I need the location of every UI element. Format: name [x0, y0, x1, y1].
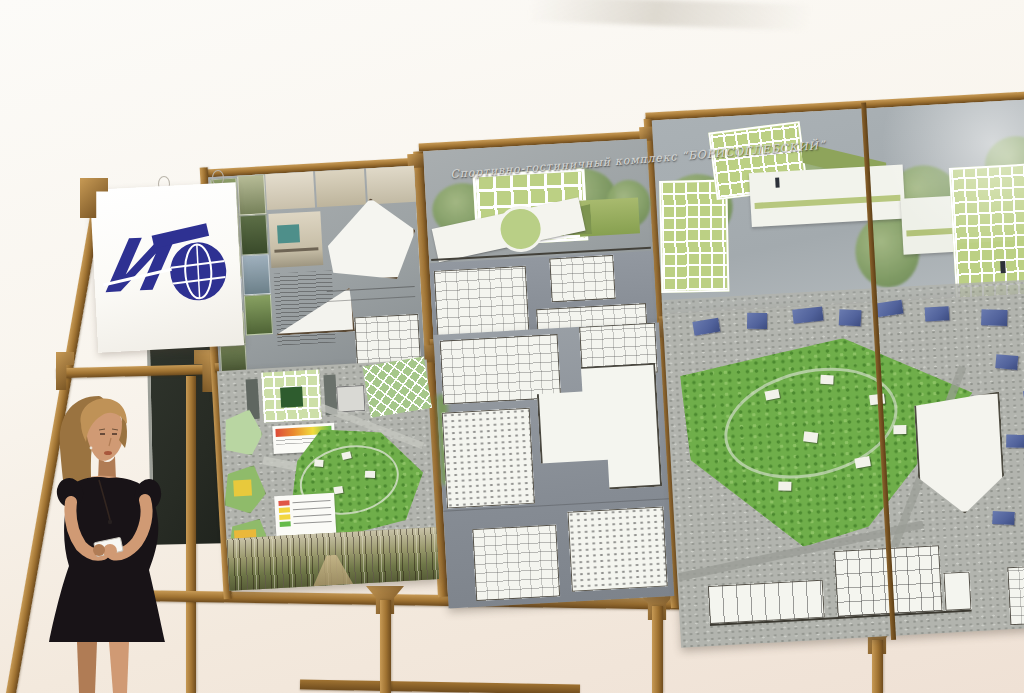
park-building [854, 456, 871, 468]
section-block-end [943, 571, 971, 610]
mini-map-patch [233, 479, 252, 496]
nature-photo [244, 294, 273, 335]
logo-banner: И [90, 182, 244, 352]
forest-panorama [226, 527, 439, 591]
city-building [992, 511, 1015, 525]
park-building [803, 431, 818, 443]
park-building [333, 486, 343, 494]
city-building [1006, 435, 1024, 448]
park-building [820, 375, 833, 385]
interior-photo [315, 169, 365, 208]
presenter-hand [93, 544, 105, 556]
park-building [778, 481, 791, 490]
presenter-mouth [104, 451, 112, 455]
nature-photo [239, 214, 268, 255]
interior-photo [265, 171, 315, 210]
legend-rows [277, 498, 332, 527]
corner-floor-plan [1007, 564, 1024, 626]
interior-shelf [274, 247, 318, 252]
triangular-floor-plan [318, 196, 418, 283]
section-block-low [708, 580, 825, 624]
section-drawing [706, 542, 971, 627]
city-building [747, 313, 767, 329]
board-bottom-right [663, 292, 1024, 648]
render-figure [775, 177, 780, 187]
globe-icon [169, 241, 228, 302]
board-bottom-left [217, 359, 439, 590]
diagonal-grid-patch [362, 357, 432, 418]
interior-photo-strip [265, 166, 416, 210]
park-building [893, 425, 906, 434]
floor-plan-5 [472, 524, 560, 601]
city-building [995, 354, 1018, 370]
render-figure [1000, 261, 1006, 273]
city-building [692, 318, 720, 336]
presenter-hand [103, 544, 117, 558]
pentagon-floor-plan [914, 392, 1007, 517]
dimension-line [327, 286, 415, 292]
park-building [365, 471, 375, 478]
mini-map-2 [222, 465, 267, 515]
city-building [876, 300, 904, 318]
nature-photo [242, 254, 271, 295]
interior-render-photo [268, 211, 323, 268]
photo-glare [851, 98, 1024, 249]
nature-photo [237, 174, 266, 215]
interior-photo [366, 166, 416, 205]
presenter-earring [90, 447, 93, 450]
presenter-leg-right [109, 642, 129, 693]
board-wall: Спортивно-гостиничный комплекс “БОРИСОГЛ… [195, 72, 1024, 689]
board-bottom-center [433, 322, 674, 608]
forest-path [312, 554, 354, 586]
interior-painting [277, 224, 300, 243]
stand-post-left [186, 376, 196, 693]
floor-plan-6 [567, 506, 667, 591]
presenter-leg-left [77, 642, 97, 693]
board-top-left [208, 166, 425, 381]
city-building [839, 309, 862, 326]
green-grid-diagram [261, 369, 322, 422]
park-building [314, 459, 324, 467]
floor-plan [549, 255, 615, 303]
board-top-right [652, 98, 1024, 328]
institute-logo: И [99, 213, 234, 325]
city-building [981, 309, 1007, 326]
photo-scene: Спортивно-гостиничный комплекс “БОРИСОГЛ… [0, 0, 1024, 693]
presenter-pendant [108, 520, 112, 524]
bw-render-block [336, 385, 365, 413]
city-building [925, 306, 950, 321]
diagram-core [280, 386, 303, 407]
globe-graticule [169, 241, 228, 302]
floor-plan-3 [442, 408, 535, 509]
presenter [14, 390, 184, 693]
city-building [792, 307, 823, 324]
floor-plan [434, 266, 530, 337]
